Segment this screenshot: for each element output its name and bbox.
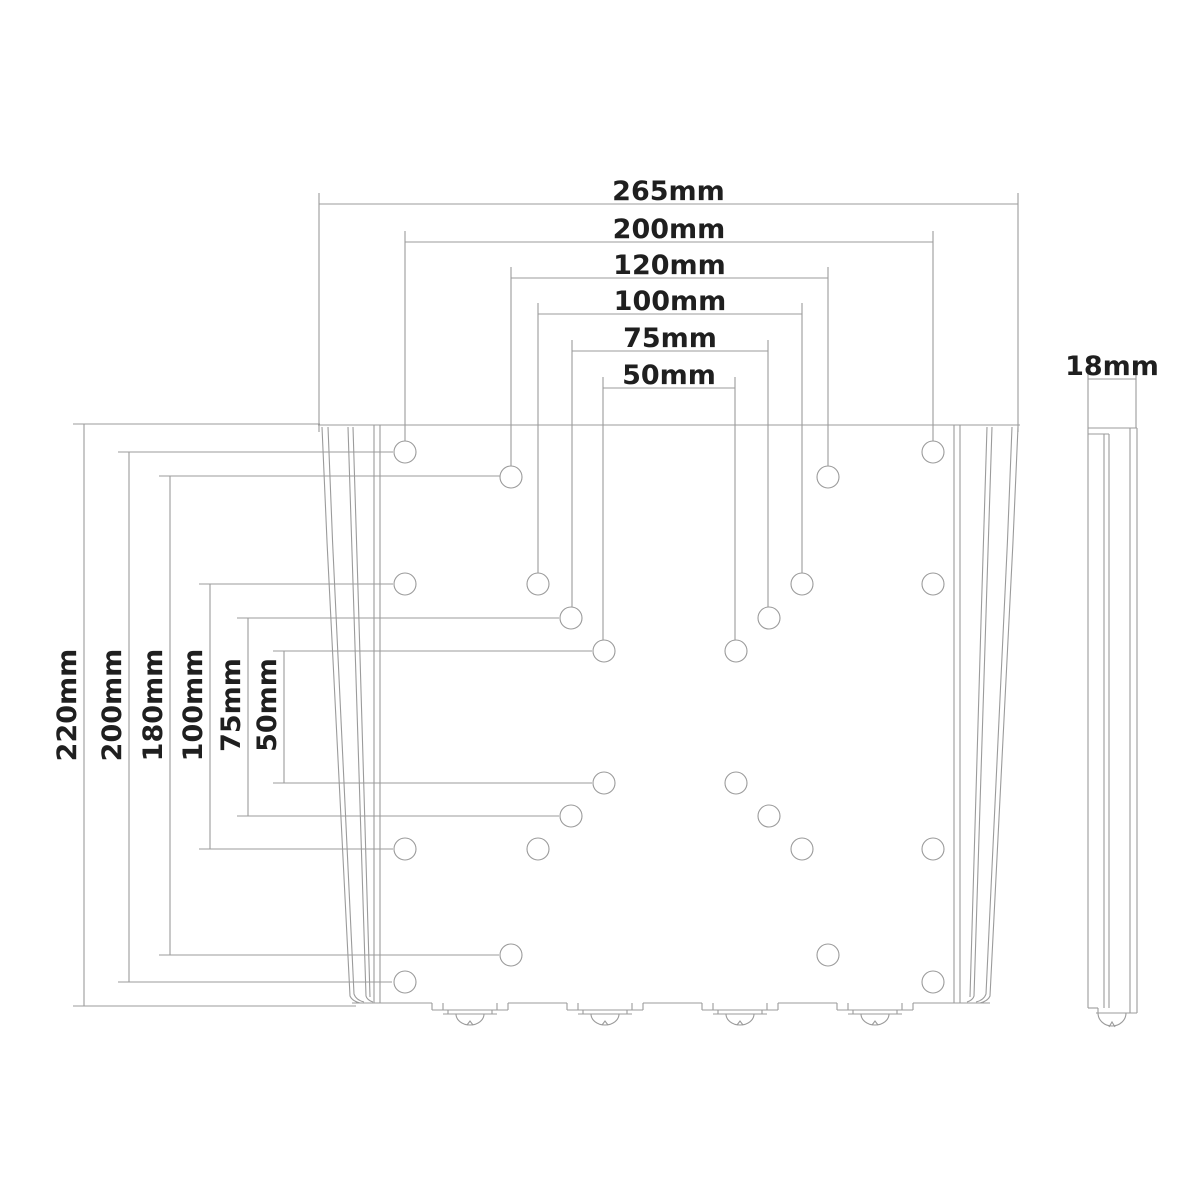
dimension-label: 50mm [252, 658, 283, 752]
mounting-hole [394, 441, 416, 463]
dimension-label: 120mm [613, 250, 726, 281]
dimension-diagram-canvas: 265mm200mm120mm100mm75mm50mm 220mm200mm1… [0, 0, 1200, 1200]
mounting-hole [593, 772, 615, 794]
dimension-label: 18mm [1065, 351, 1159, 382]
dimension-label: 180mm [138, 649, 169, 762]
mounting-hole [758, 607, 780, 629]
mounting-hole [725, 772, 747, 794]
dimension-label: 75mm [216, 658, 247, 752]
mounting-hole [560, 805, 582, 827]
dimension-label: 265mm [612, 176, 725, 207]
mounting-hole [922, 441, 944, 463]
tab-knob-notch [467, 1021, 473, 1025]
horizontal-dimensions: 265mm200mm120mm100mm75mm50mm [319, 176, 1018, 640]
mounting-hole [394, 838, 416, 860]
mounting-hole [593, 640, 615, 662]
dimension-label: 50mm [622, 360, 716, 391]
dimension-label: 220mm [52, 649, 83, 762]
tab-knob [726, 1014, 754, 1025]
tab-knob [456, 1014, 484, 1025]
mounting-hole [527, 573, 549, 595]
tab-knob [591, 1014, 619, 1025]
mounting-hole [394, 971, 416, 993]
mounting-hole [527, 838, 549, 860]
mounting-hole [725, 640, 747, 662]
mounting-hole [791, 838, 813, 860]
mounting-holes [394, 441, 944, 993]
vertical-dimensions: 220mm200mm180mm100mm75mm50mm [52, 424, 592, 1006]
mounting-hole [394, 573, 416, 595]
plate-wing-edge-left [353, 427, 370, 997]
mounting-hole [922, 838, 944, 860]
wall-mount-dimension-diagram: 265mm200mm120mm100mm75mm50mm 220mm200mm1… [0, 0, 1200, 1200]
dimension-label: 100mm [614, 286, 727, 317]
dimension-label: 75mm [623, 323, 717, 354]
tab-knob [861, 1014, 889, 1025]
mounting-hole [500, 466, 522, 488]
mounting-hole [922, 971, 944, 993]
mounting-hole [922, 573, 944, 595]
tab-knob-notch [872, 1021, 878, 1025]
mounting-hole [791, 573, 813, 595]
mounting-hole [817, 466, 839, 488]
tab-knob-notch [602, 1021, 608, 1025]
plate-wing-edge-left [348, 427, 373, 1002]
side-locking-knob [1098, 1013, 1126, 1026]
plate-wing-edge-right [970, 427, 987, 997]
mounting-hole [758, 805, 780, 827]
plate-wing-edge-right [967, 427, 992, 1002]
tab-knob-notch [737, 1021, 743, 1025]
mounting-hole [817, 944, 839, 966]
dimension-label: 100mm [178, 649, 209, 762]
plate-front-view [318, 425, 1020, 1003]
dimension-label: 200mm [613, 214, 726, 245]
bottom-locking-tabs [432, 1003, 913, 1025]
mounting-hole [500, 944, 522, 966]
plate-side-view: 18mm [1065, 351, 1159, 1027]
mounting-hole [560, 607, 582, 629]
dimension-label: 200mm [97, 649, 128, 762]
